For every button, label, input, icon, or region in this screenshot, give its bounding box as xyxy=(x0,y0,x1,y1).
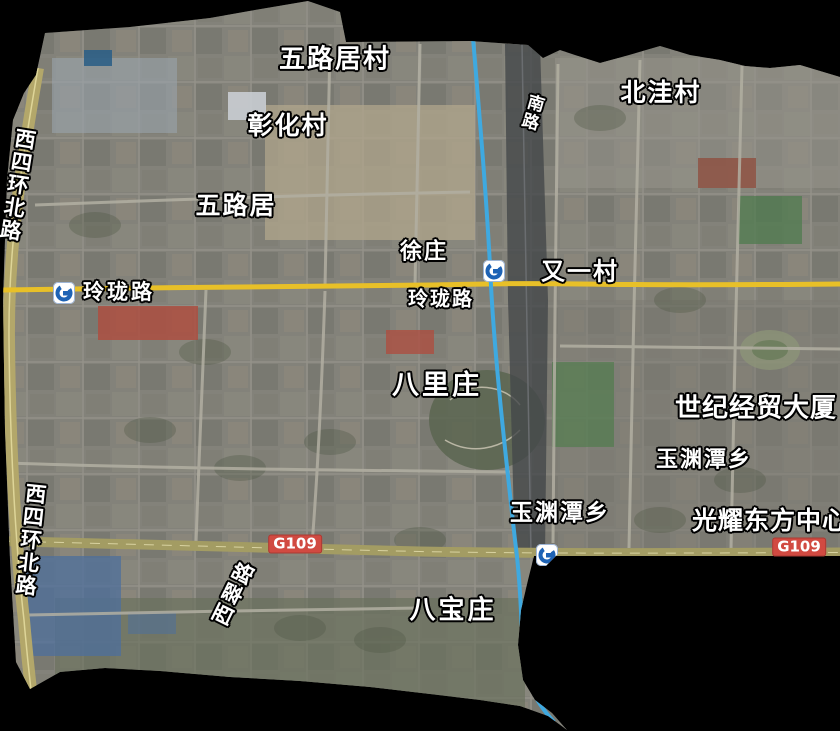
map-label-village: 八宝庄 xyxy=(409,597,496,624)
map-label-village: 五路居 xyxy=(195,193,276,219)
metro-station-icon[interactable] xyxy=(483,260,505,282)
map-label-township: 玉渊潭乡 xyxy=(510,501,610,525)
map-label-village: 八里庄 xyxy=(392,372,482,400)
map-label-road: 玲珑路 xyxy=(408,289,474,310)
map-label-village: 徐庄 xyxy=(400,240,448,263)
map-label-village: 又一村 xyxy=(541,259,619,284)
route-badge-g109: G109 xyxy=(772,538,826,557)
map-label-village: 彰化村 xyxy=(247,113,328,139)
map-label-building: 光耀东方中心 xyxy=(692,508,840,534)
map-label-township: 玉渊潭乡 xyxy=(656,448,752,471)
satellite-map-canvas[interactable]: 五路居村 彰化村 北洼村 南路 五路居 徐庄 又一村 玲珑路 玲珑路 八里庄 世… xyxy=(0,0,840,731)
map-label-village: 五路居村 xyxy=(279,46,391,73)
metro-station-icon[interactable] xyxy=(53,282,75,304)
map-label-road: 玲珑路 xyxy=(83,281,155,303)
map-label-village: 北洼村 xyxy=(620,80,701,106)
route-badge-g109: G109 xyxy=(268,535,322,554)
map-label-building: 世纪经贸大厦 xyxy=(675,395,837,422)
